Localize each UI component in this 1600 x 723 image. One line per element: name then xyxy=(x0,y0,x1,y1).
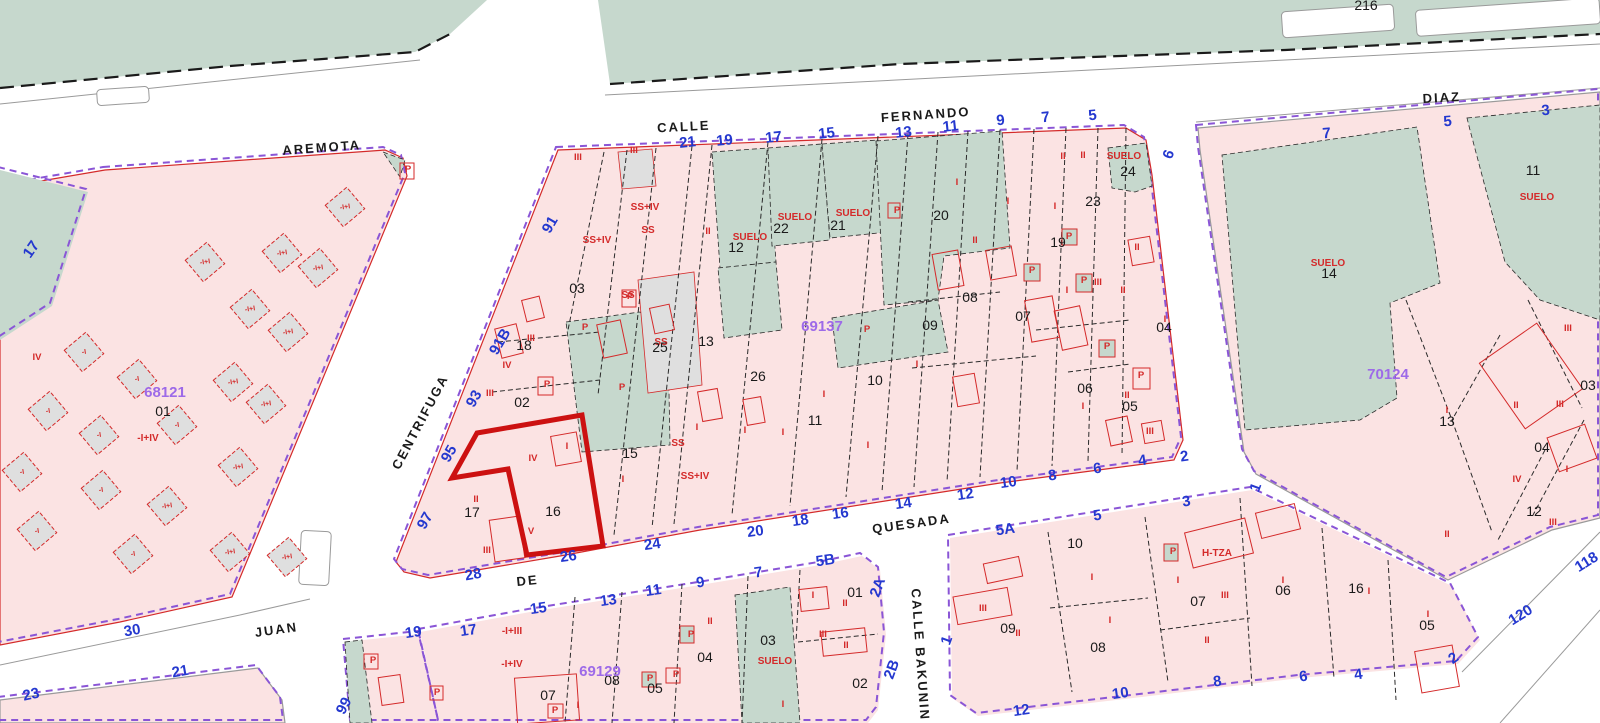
house-number: 26 xyxy=(559,547,578,566)
building-height-label: -I+I xyxy=(276,249,287,257)
building-height-label: -I+I xyxy=(244,305,255,313)
house-number: 15 xyxy=(817,124,835,143)
storey-mark: I xyxy=(744,425,747,436)
storey-mark: I xyxy=(696,422,699,433)
storey-mark: P xyxy=(370,655,377,666)
zone-label: SUELO xyxy=(1520,192,1555,203)
gray-parcel[interactable] xyxy=(638,272,702,393)
storey-mark: P xyxy=(1066,231,1073,242)
building-height-label: -I+I xyxy=(224,548,235,556)
parcel-number: 08 xyxy=(962,289,978,305)
parcel-number: 03 xyxy=(1580,377,1596,393)
house-number: 13 xyxy=(894,123,912,142)
storey-mark: P xyxy=(894,205,901,216)
storey-mark: II xyxy=(1015,628,1020,639)
storey-mark: II xyxy=(1204,635,1209,646)
parcel-number: 216 xyxy=(1354,0,1378,13)
storey-mark: I xyxy=(823,389,826,400)
house-number: 20 xyxy=(746,522,765,541)
storey-mark: I xyxy=(1054,201,1057,212)
building-height-label: -I+I xyxy=(312,264,323,272)
parcel-number: 02 xyxy=(852,675,868,691)
green-parcel[interactable] xyxy=(712,148,776,268)
parcel-number: 07 xyxy=(540,687,556,703)
storey-mark: P xyxy=(627,291,634,302)
zone-label: SS+IV xyxy=(583,235,612,246)
storey-mark: I xyxy=(867,440,870,451)
parcel-number: 26 xyxy=(750,368,766,384)
zone-label: H-TZA xyxy=(1202,548,1232,559)
house-number: 15 xyxy=(529,599,548,618)
storey-mark: I xyxy=(812,590,815,601)
storey-mark: III xyxy=(574,152,582,163)
house-number: 21 xyxy=(171,662,190,682)
building-height-label: -I+I xyxy=(339,203,350,211)
storey-mark: I xyxy=(577,700,580,711)
block-id: 69137 xyxy=(801,318,843,335)
house-number: 17 xyxy=(764,128,782,147)
storey-mark: I xyxy=(1066,285,1069,296)
zone-label: SUELO xyxy=(758,656,793,667)
storey-mark: I xyxy=(782,427,785,438)
storey-mark: II xyxy=(1444,529,1449,540)
storey-mark: I xyxy=(1566,464,1569,475)
storey-mark: II xyxy=(1080,150,1085,161)
house-number: 9 xyxy=(995,112,1005,130)
street-name: DIAZ xyxy=(1422,89,1461,106)
storey-mark: I xyxy=(1082,401,1085,412)
storey-mark: III xyxy=(1221,590,1229,601)
parcel-number: 08 xyxy=(1090,639,1106,655)
storey-mark: IV xyxy=(529,453,539,464)
house-number: 21 xyxy=(678,133,696,152)
storey-mark: II xyxy=(705,226,710,237)
parcel-number: 21 xyxy=(830,217,846,233)
block-id: 69129 xyxy=(579,663,621,680)
house-number: 5 xyxy=(1443,113,1453,131)
parcel-number: 22 xyxy=(773,220,789,236)
storey-mark: II xyxy=(1134,242,1139,253)
zone-label: SUELO xyxy=(1107,151,1142,162)
parcel-number: 04 xyxy=(1534,439,1550,455)
parcel-number: 23 xyxy=(1085,193,1101,209)
house-number: 5A xyxy=(995,520,1017,540)
zone-label: -I+III xyxy=(502,626,523,637)
green-parcel[interactable] xyxy=(735,587,800,723)
storey-mark: P xyxy=(434,687,441,698)
storey-mark: I xyxy=(1109,615,1112,626)
storey-mark: P xyxy=(688,629,695,640)
parcel-number: 07 xyxy=(1015,308,1031,324)
storey-mark: I xyxy=(622,474,625,485)
cadastral-map[interactable]: -I+I-I+I-I+I-I+I-I+I-I+I-I-I-I+I-I+I-I-I… xyxy=(0,0,1600,723)
parcel-number: 04 xyxy=(697,649,713,665)
storey-mark: P xyxy=(405,164,412,175)
building-height-label: -I+I xyxy=(161,502,172,510)
zone-label: SS xyxy=(671,438,685,449)
storey-mark: II xyxy=(843,640,848,651)
parcel-number: 13 xyxy=(1439,413,1455,429)
parcel-number: 06 xyxy=(1077,380,1093,396)
house-number: 24 xyxy=(643,535,663,554)
parcel-number: 09 xyxy=(922,317,938,333)
parcel-number: 12 xyxy=(728,239,744,255)
parcel-number: 01 xyxy=(155,403,171,419)
house-number: 14 xyxy=(894,494,914,513)
house-number: 23 xyxy=(21,685,41,705)
storey-mark: P xyxy=(1104,341,1111,352)
storey-mark: II xyxy=(1513,400,1518,411)
building-height-label: -I+I xyxy=(227,378,238,386)
storey-mark: III xyxy=(1094,277,1102,288)
house-number: 3 xyxy=(1541,102,1551,120)
storey-mark: IV xyxy=(1513,474,1523,485)
house-number: 10 xyxy=(1111,684,1130,703)
house-number: 16 xyxy=(831,504,850,523)
parcel-number: 06 xyxy=(1275,582,1291,598)
storey-mark: II xyxy=(1060,151,1065,162)
house-number: 13 xyxy=(599,591,618,610)
building-height-label: -I+I xyxy=(281,553,292,561)
parcel-number: 20 xyxy=(933,207,949,223)
storey-mark: I xyxy=(782,699,785,710)
house-number: 12 xyxy=(1012,701,1031,720)
house-number: 18 xyxy=(791,511,810,530)
storey-mark: I xyxy=(956,177,959,188)
house-number: 12 xyxy=(956,485,975,504)
parcel-number: 11 xyxy=(1526,162,1541,178)
storey-mark: P xyxy=(582,322,589,333)
parcel-number: 05 xyxy=(1122,398,1138,414)
street-name: CALLE xyxy=(657,118,711,136)
building-height-label: -I+I xyxy=(282,328,293,336)
storey-mark: III xyxy=(1564,323,1572,334)
storey-mark: I xyxy=(1368,586,1371,597)
parcel-number: 15 xyxy=(622,445,638,461)
storey-mark: III xyxy=(819,629,827,640)
building-height-label: -I+I xyxy=(199,258,210,266)
parcel-number: 03 xyxy=(760,632,776,648)
parcel-number: 10 xyxy=(867,372,883,388)
parcel-number: 05 xyxy=(1419,617,1435,633)
storey-mark: II xyxy=(1120,285,1125,296)
storey-mark: III xyxy=(486,388,494,399)
storey-mark: P xyxy=(1081,275,1088,286)
storey-mark: III xyxy=(483,545,491,556)
parcel-number: 12 xyxy=(1526,503,1542,519)
zone-label: SS xyxy=(641,225,655,236)
storey-mark: III xyxy=(1556,399,1564,410)
parcel-number: 02 xyxy=(514,394,530,410)
storey-mark: III xyxy=(979,603,987,614)
storey-mark: P xyxy=(1138,370,1145,381)
storey-mark: II xyxy=(707,616,712,627)
parcel-number: 14 xyxy=(1321,265,1337,281)
parcel-number: 09 xyxy=(1000,620,1016,636)
house-number: 19 xyxy=(404,623,423,642)
parcel-number: 05 xyxy=(647,680,663,696)
parcel-number: 25 xyxy=(652,339,668,355)
parcel-number: 03 xyxy=(569,280,585,296)
storey-mark: II xyxy=(972,235,977,246)
storey-mark: P xyxy=(1170,546,1177,557)
parcel-number: 18 xyxy=(516,337,532,353)
storey-mark: P xyxy=(552,705,559,716)
storey-mark: IV xyxy=(33,352,43,363)
block-id: 70124 xyxy=(1367,366,1409,383)
parcel-number: 04 xyxy=(1156,319,1172,335)
parcel-number: 24 xyxy=(1120,163,1136,179)
house-number: 5 xyxy=(1087,107,1097,125)
storey-mark: I xyxy=(566,441,569,452)
storey-mark: P xyxy=(619,382,626,393)
house-number: 7 xyxy=(1040,109,1050,127)
block-id: 68121 xyxy=(144,384,186,401)
road-segment xyxy=(97,86,150,106)
cadastral-map-viewport[interactable]: -I+I-I+I-I+I-I+I-I+I-I+I-I-I-I+I-I+I-I-I… xyxy=(0,0,1600,723)
storey-mark: III xyxy=(630,145,638,156)
zone-label: SS+IV xyxy=(681,471,710,482)
house-number: 17 xyxy=(459,621,478,640)
storey-mark: P xyxy=(864,324,871,335)
street-name: DE xyxy=(516,572,540,589)
storey-mark: I xyxy=(1177,575,1180,586)
house-number: 19 xyxy=(715,131,733,150)
storey-mark: I xyxy=(1091,572,1094,583)
storey-mark: III xyxy=(1549,517,1557,528)
zone-label: SS+IV xyxy=(631,202,660,213)
house-number: 28 xyxy=(464,565,483,585)
storey-mark: I xyxy=(1007,196,1010,207)
storey-mark: P xyxy=(673,669,680,680)
house-number: 5B xyxy=(815,551,837,571)
parcel-number: 11 xyxy=(808,412,823,428)
parcel-number: 17 xyxy=(464,504,480,520)
storey-mark: V xyxy=(528,526,535,537)
building-height-label: -I+I xyxy=(260,400,271,408)
parcel-number: 13 xyxy=(698,333,714,349)
parcel-number: 16 xyxy=(1348,580,1364,596)
house-number: 11 xyxy=(644,581,662,600)
building-height-label: -I+I xyxy=(232,463,243,471)
parcel-number: 10 xyxy=(1067,535,1083,551)
storey-mark: III xyxy=(1146,426,1154,437)
house-number: 30 xyxy=(123,621,142,641)
house-number: 7 xyxy=(1322,125,1332,143)
parcel-number: 16 xyxy=(545,503,561,519)
parcel-number: 07 xyxy=(1190,593,1206,609)
zone-label: -I+IV xyxy=(137,433,159,444)
parcel-number: 19 xyxy=(1050,234,1066,250)
storey-mark: P xyxy=(1029,265,1036,276)
zone-label: -I+IV xyxy=(501,659,523,670)
storey-mark: IV xyxy=(503,360,513,371)
house-number: 10 xyxy=(999,473,1018,492)
storey-mark: P xyxy=(544,379,551,390)
parcel-number: 01 xyxy=(847,584,863,600)
storey-mark: I xyxy=(916,359,919,370)
